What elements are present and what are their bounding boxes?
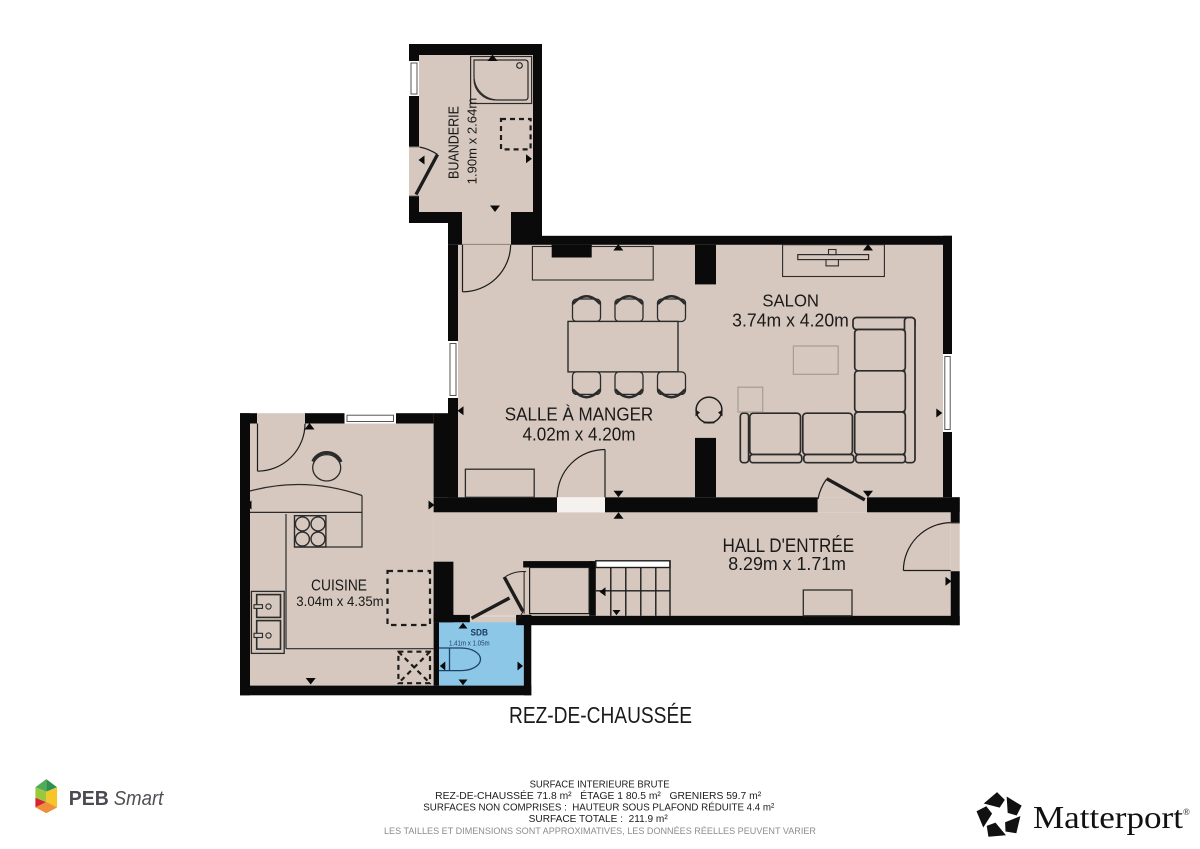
svg-text:SURFACES NON COMPRISES : HAUT: SURFACES NON COMPRISES : HAUTEUR SOUS PL… (423, 800, 775, 813)
svg-text:SURFACE TOTALE : 211.9 m²: SURFACE TOTALE : 211.9 m² (529, 814, 669, 825)
svg-text:4.02m x 4.20m: 4.02m x 4.20m (523, 425, 636, 445)
svg-text:Smart: Smart (114, 788, 165, 810)
svg-text:CUISINE: CUISINE (311, 578, 367, 595)
svg-text:SALON: SALON (762, 291, 819, 311)
svg-text:1.90m x 2.64m: 1.90m x 2.64m (465, 98, 480, 185)
svg-text:LES TAILLES ET DIMENSIONS SONT: LES TAILLES ET DIMENSIONS SONT APPROXIMA… (384, 826, 816, 837)
svg-text:Matterport: Matterport (1033, 800, 1183, 835)
svg-text:SALLE À MANGER: SALLE À MANGER (505, 404, 653, 425)
svg-text:3.04m x 4.35m: 3.04m x 4.35m (296, 594, 383, 609)
svg-text:8.29m x 1.71m: 8.29m x 1.71m (728, 554, 846, 574)
svg-text:3.74m x 4.20m: 3.74m x 4.20m (732, 310, 849, 330)
svg-text:SURFACE INTERIEURE BRUTE: SURFACE INTERIEURE BRUTE (530, 780, 670, 791)
svg-text:BUANDERIE: BUANDERIE (447, 106, 463, 179)
svg-text:REZ-DE-CHAUSSÉE 71.8 m² ÉTAG: REZ-DE-CHAUSSÉE 71.8 m² ÉTAGE 1 80.5 m² … (435, 789, 762, 802)
svg-text:®: ® (1183, 807, 1190, 817)
svg-text:REZ-DE-CHAUSSÉE: REZ-DE-CHAUSSÉE (509, 702, 692, 728)
svg-text:1.41m x 1.05m: 1.41m x 1.05m (449, 639, 490, 648)
svg-text:SDB: SDB (470, 628, 488, 638)
svg-text:PEB: PEB (69, 788, 109, 810)
